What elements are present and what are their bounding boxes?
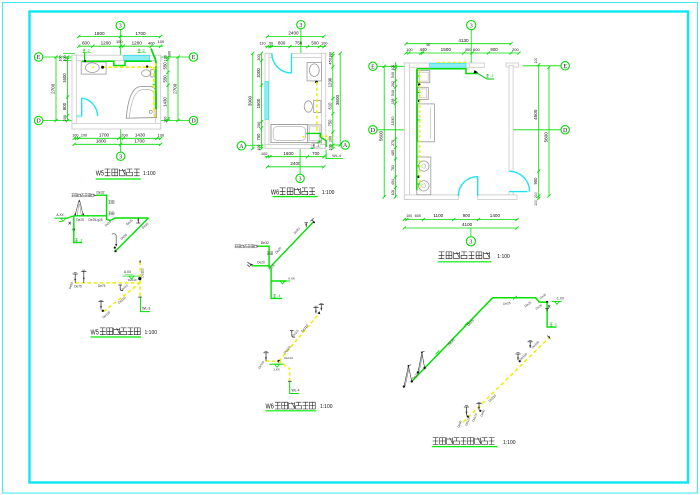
svg-text:De110: De110 [284, 356, 293, 360]
svg-text:600: 600 [415, 214, 421, 218]
svg-text:E: E [371, 64, 375, 70]
svg-text:2400: 2400 [290, 161, 301, 166]
svg-text:100: 100 [257, 145, 261, 151]
svg-text:610: 610 [327, 102, 332, 110]
svg-text:E: E [37, 55, 41, 61]
svg-text:100: 100 [328, 52, 332, 58]
svg-text:D: D [371, 128, 376, 134]
svg-text:3: 3 [119, 154, 122, 160]
svg-text:550: 550 [163, 75, 168, 83]
svg-text:300: 300 [257, 54, 261, 60]
svg-text:3600: 3600 [335, 94, 340, 105]
svg-text:D: D [563, 128, 568, 134]
svg-text:450: 450 [327, 57, 332, 64]
svg-text:750: 750 [327, 119, 332, 127]
svg-text:E: E [563, 64, 567, 70]
svg-text:500: 500 [311, 41, 319, 46]
svg-text:1700: 1700 [134, 139, 145, 144]
svg-text:De25-q25: De25-q25 [89, 218, 103, 222]
svg-text:200: 200 [328, 136, 332, 142]
svg-text:4500: 4500 [533, 109, 538, 120]
svg-text:100: 100 [164, 55, 168, 61]
svg-text:540: 540 [391, 72, 395, 78]
svg-text:485: 485 [391, 150, 395, 156]
svg-text:110: 110 [260, 42, 266, 46]
svg-text:800: 800 [278, 41, 286, 46]
svg-text:100: 100 [391, 190, 395, 196]
svg-text:E: E [192, 55, 196, 61]
svg-text:-2: -2 [87, 49, 90, 53]
svg-text:W5: W5 [91, 327, 99, 336]
svg-text:5600: 5600 [543, 132, 548, 143]
svg-text:1200: 1200 [132, 40, 143, 45]
svg-text:De110: De110 [128, 278, 137, 282]
svg-text:540: 540 [391, 90, 395, 96]
svg-text:De75: De75 [98, 284, 106, 288]
svg-text:D: D [191, 119, 196, 125]
svg-text:WL-4: WL-4 [332, 154, 341, 158]
svg-text:1400: 1400 [490, 213, 501, 218]
svg-text:A.XX: A.XX [124, 270, 132, 274]
svg-text:-4: -4 [277, 294, 280, 298]
svg-text:1290: 1290 [327, 77, 332, 87]
svg-text:W5: W5 [96, 168, 104, 177]
svg-text:1600: 1600 [62, 73, 67, 83]
svg-text:100: 100 [406, 214, 412, 218]
svg-text:A: A [239, 144, 244, 150]
svg-text:1:100: 1:100 [497, 254, 510, 260]
svg-text:100: 100 [81, 134, 87, 138]
svg-text:-2: -2 [79, 238, 82, 242]
svg-text:370: 370 [391, 140, 395, 146]
svg-text:De32: De32 [96, 190, 104, 194]
svg-text:De25: De25 [76, 218, 84, 222]
svg-text:1800: 1800 [96, 139, 107, 144]
svg-text:100: 100 [534, 58, 538, 64]
svg-text:D: D [36, 119, 41, 125]
svg-text:800: 800 [62, 102, 67, 110]
svg-text:100: 100 [158, 39, 165, 44]
svg-text:200: 200 [63, 115, 67, 121]
svg-text:1:100: 1:100 [503, 440, 516, 446]
svg-text:De110: De110 [141, 268, 145, 277]
svg-text:1000: 1000 [256, 68, 261, 78]
svg-text:-1.XX: -1.XX [556, 297, 565, 301]
svg-text:2700: 2700 [173, 83, 178, 94]
svg-text:WL-3: WL-3 [142, 307, 150, 311]
svg-text:60: 60 [427, 43, 431, 47]
svg-text:3: 3 [469, 239, 472, 245]
svg-text:100: 100 [391, 65, 395, 71]
svg-text:440: 440 [420, 47, 428, 52]
svg-text:4100: 4100 [462, 222, 473, 227]
svg-text:1:100: 1:100 [320, 404, 333, 410]
svg-text:1:100: 1:100 [145, 330, 158, 336]
svg-text:4130: 4130 [458, 38, 469, 43]
svg-text:De32: De32 [261, 241, 269, 245]
svg-text:3: 3 [299, 23, 302, 29]
svg-text:750: 750 [256, 133, 261, 141]
svg-text:100: 100 [328, 144, 332, 150]
svg-text:W6: W6 [271, 187, 279, 196]
svg-text:100: 100 [321, 42, 327, 46]
svg-text:900: 900 [533, 177, 538, 185]
svg-text:3: 3 [119, 24, 122, 30]
svg-text:400: 400 [148, 40, 155, 45]
svg-text:1700: 1700 [99, 133, 110, 138]
svg-text:A.XX: A.XX [56, 213, 64, 217]
svg-text:100: 100 [164, 117, 168, 123]
svg-text:3: 3 [470, 23, 473, 29]
svg-text:550: 550 [163, 62, 168, 70]
svg-text:600: 600 [82, 40, 90, 45]
svg-text:W6: W6 [266, 402, 274, 411]
svg-text:5600: 5600 [378, 130, 383, 141]
svg-text:50: 50 [269, 42, 273, 46]
svg-text:1430: 1430 [135, 133, 146, 138]
svg-text:454: 454 [391, 179, 395, 185]
svg-text:100: 100 [534, 200, 538, 206]
svg-text:750: 750 [295, 41, 303, 46]
svg-text:200: 200 [121, 133, 128, 138]
svg-text:100: 100 [116, 39, 123, 44]
svg-text:-2: -2 [142, 49, 145, 53]
svg-text:-1: -1 [490, 74, 493, 78]
svg-text:2700: 2700 [51, 83, 56, 94]
svg-text:300: 300 [465, 47, 472, 52]
svg-text:262: 262 [391, 81, 395, 87]
svg-text:600: 600 [473, 47, 480, 52]
svg-text:100: 100 [63, 55, 67, 61]
svg-text:De20: De20 [257, 261, 265, 265]
svg-text:2400: 2400 [288, 31, 299, 36]
svg-text:100: 100 [72, 134, 78, 138]
svg-text:781: 781 [391, 165, 395, 171]
svg-text:700: 700 [312, 151, 320, 156]
svg-text:WL-4: WL-4 [291, 389, 299, 393]
svg-text:100: 100 [406, 48, 412, 52]
svg-text:3900: 3900 [247, 95, 252, 106]
svg-text:200: 200 [512, 47, 519, 52]
svg-text:De75: De75 [74, 285, 82, 289]
svg-text:1800: 1800 [94, 31, 105, 36]
svg-text:1200: 1200 [101, 40, 112, 45]
svg-text:X.XX: X.XX [288, 276, 295, 280]
svg-text:1430: 1430 [163, 97, 168, 107]
svg-text:1.XX: 1.XX [273, 368, 280, 372]
svg-text:100: 100 [261, 152, 267, 156]
svg-text:900: 900 [490, 47, 498, 52]
svg-text:1700: 1700 [135, 31, 146, 36]
svg-text:1:100: 1:100 [143, 171, 156, 177]
svg-text:1500: 1500 [441, 47, 452, 52]
svg-text:900: 900 [463, 213, 471, 218]
svg-text:1530: 1530 [390, 116, 395, 126]
svg-text:-1: -1 [554, 323, 557, 327]
svg-text:250: 250 [257, 122, 261, 128]
svg-text:1500: 1500 [256, 98, 261, 108]
svg-text:158: 158 [391, 98, 395, 104]
svg-text:1:100: 1:100 [322, 190, 335, 196]
svg-text:1600: 1600 [283, 151, 294, 156]
svg-text:200: 200 [534, 192, 538, 198]
svg-text:A: A [343, 143, 348, 149]
svg-text:-4: -4 [316, 144, 319, 148]
svg-text:1100: 1100 [433, 213, 443, 218]
svg-text:100: 100 [158, 134, 164, 138]
svg-text:3: 3 [299, 177, 302, 183]
svg-text:100: 100 [59, 56, 63, 62]
